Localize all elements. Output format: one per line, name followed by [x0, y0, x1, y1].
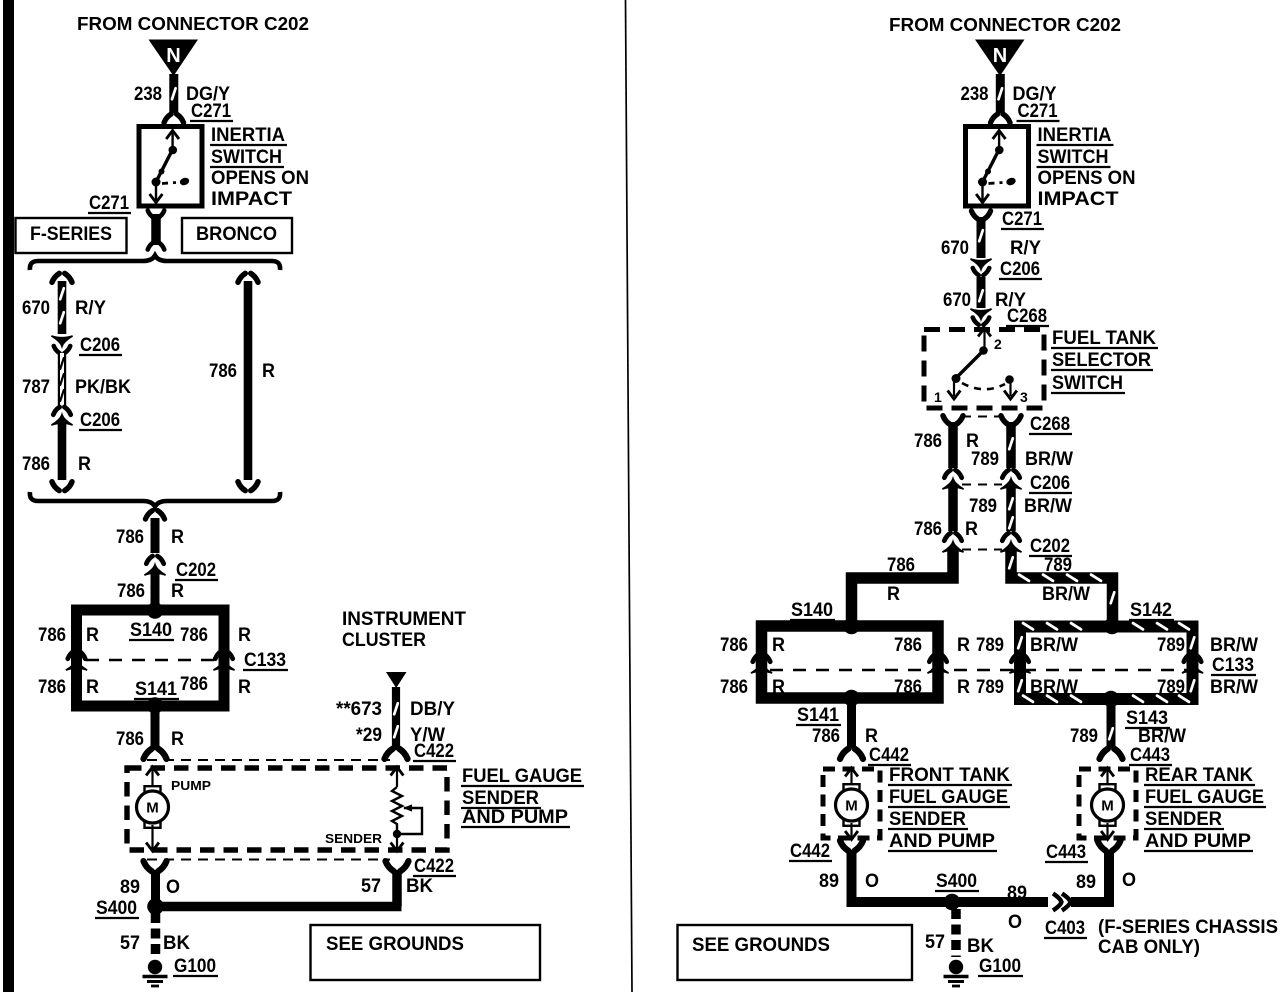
svg-text:IMPACT: IMPACT [1038, 189, 1119, 210]
svg-text:SEE GROUNDS: SEE GROUNDS [692, 935, 830, 956]
svg-text:670: 670 [22, 298, 50, 319]
svg-text:789: 789 [1044, 555, 1072, 576]
svg-text:670: 670 [943, 290, 971, 311]
svg-text:786: 786 [38, 625, 66, 646]
svg-text:BR/W: BR/W [1024, 496, 1072, 517]
svg-text:238: 238 [134, 84, 162, 105]
svg-text:S140: S140 [130, 620, 172, 641]
svg-text:786: 786 [116, 729, 144, 750]
svg-text:57: 57 [925, 932, 945, 953]
svg-text:SENDER: SENDER [1145, 809, 1222, 830]
svg-text:SWITCH: SWITCH [1052, 373, 1123, 394]
svg-text:BR/W: BR/W [1210, 635, 1258, 656]
svg-text:C206: C206 [1030, 473, 1070, 494]
svg-text:**673: **673 [336, 699, 382, 720]
svg-text:S400: S400 [96, 898, 137, 919]
svg-text:INERTIA: INERTIA [211, 125, 285, 146]
svg-text:57: 57 [361, 876, 381, 897]
svg-text:C422: C422 [414, 856, 454, 877]
svg-text:786: 786 [894, 635, 922, 656]
svg-text:SELECTOR: SELECTOR [1052, 350, 1151, 371]
svg-text:786: 786 [180, 674, 208, 695]
svg-text:R: R [772, 677, 785, 698]
svg-text:BK: BK [163, 933, 190, 954]
svg-text:786: 786 [887, 555, 915, 576]
svg-text:FUEL TANK: FUEL TANK [1052, 328, 1156, 349]
svg-text:C268: C268 [1007, 306, 1047, 327]
svg-text:C271: C271 [1018, 101, 1058, 122]
svg-text:FUEL GAUGE: FUEL GAUGE [1145, 787, 1264, 808]
svg-text:PK/BK: PK/BK [75, 377, 131, 398]
svg-text:R: R [262, 361, 275, 382]
svg-text:*29: *29 [356, 725, 382, 746]
svg-text:CLUSTER: CLUSTER [342, 630, 426, 651]
svg-text:O: O [865, 871, 879, 892]
svg-text:3: 3 [1020, 389, 1028, 405]
svg-text:C443: C443 [1046, 842, 1086, 863]
svg-text:R: R [86, 677, 99, 698]
svg-text:BR/W: BR/W [1210, 677, 1258, 698]
svg-text:SWITCH: SWITCH [1038, 147, 1109, 168]
svg-text:786: 786 [914, 431, 942, 452]
svg-text:89: 89 [1007, 883, 1027, 904]
svg-text:R: R [865, 726, 878, 747]
svg-text:CAB ONLY): CAB ONLY) [1098, 937, 1200, 958]
svg-text:SEE GROUNDS: SEE GROUNDS [326, 934, 464, 955]
svg-text:89: 89 [819, 871, 839, 892]
svg-text:DB/Y: DB/Y [410, 699, 455, 720]
svg-text:C133: C133 [1212, 655, 1254, 676]
svg-text:C271: C271 [1002, 209, 1042, 230]
svg-text:2: 2 [994, 336, 1002, 352]
svg-text:AND PUMP: AND PUMP [462, 807, 568, 828]
svg-text:R: R [238, 625, 251, 646]
svg-text:REAR TANK: REAR TANK [1145, 765, 1253, 786]
svg-text:FRONT TANK: FRONT TANK [889, 765, 1010, 786]
svg-text:N: N [993, 45, 1007, 67]
svg-text:787: 787 [22, 377, 50, 398]
svg-text:786: 786 [38, 677, 66, 698]
svg-text:F-SERIES: F-SERIES [30, 224, 112, 245]
svg-text:R/Y: R/Y [75, 298, 106, 319]
svg-text:786: 786 [180, 625, 208, 646]
svg-text:R: R [957, 635, 970, 656]
svg-text:INSTRUMENT: INSTRUMENT [342, 609, 466, 630]
svg-text:789: 789 [976, 635, 1004, 656]
svg-text:R: R [965, 519, 978, 540]
svg-text:89: 89 [120, 877, 140, 898]
svg-text:AND PUMP: AND PUMP [1145, 831, 1251, 852]
svg-text:S400: S400 [936, 871, 977, 892]
svg-text:786: 786 [117, 581, 145, 602]
svg-text:R/Y: R/Y [1010, 238, 1041, 259]
svg-text:PUMP: PUMP [171, 778, 211, 793]
svg-text:C271: C271 [191, 101, 231, 122]
svg-text:786: 786 [720, 677, 748, 698]
svg-text:R: R [171, 581, 184, 602]
svg-text:C422: C422 [414, 741, 454, 762]
svg-text:IMPACT: IMPACT [211, 189, 292, 210]
svg-text:SENDER: SENDER [325, 831, 383, 846]
svg-text:789: 789 [971, 449, 999, 470]
svg-text:786: 786 [116, 527, 144, 548]
svg-text:670: 670 [941, 238, 969, 259]
svg-text:G100: G100 [174, 956, 216, 977]
svg-text:FROM CONNECTOR C202: FROM CONNECTOR C202 [77, 14, 309, 34]
svg-text:S142: S142 [1130, 600, 1172, 621]
svg-text:BK: BK [967, 936, 994, 957]
svg-text:C206: C206 [80, 410, 120, 431]
svg-text:789: 789 [976, 677, 1004, 698]
svg-text:BRONCO: BRONCO [196, 224, 277, 245]
svg-text:N: N [166, 45, 180, 67]
svg-text:R: R [887, 584, 900, 605]
svg-text:SENDER: SENDER [462, 788, 539, 809]
svg-text:R: R [238, 677, 251, 698]
svg-text:BR/W: BR/W [1042, 584, 1090, 605]
svg-text:C206: C206 [1000, 259, 1040, 280]
svg-text:O: O [166, 877, 180, 898]
svg-text:OPENS ON: OPENS ON [211, 168, 309, 189]
svg-text:789: 789 [1157, 677, 1185, 698]
svg-text:O: O [1008, 912, 1022, 933]
svg-text:R: R [772, 635, 785, 656]
svg-text:SENDER: SENDER [889, 809, 966, 830]
svg-text:786: 786 [894, 677, 922, 698]
svg-text:C133: C133 [244, 650, 286, 671]
svg-text:AND PUMP: AND PUMP [889, 831, 995, 852]
svg-text:FUEL GAUGE: FUEL GAUGE [462, 766, 582, 787]
svg-text:S140: S140 [791, 600, 833, 621]
svg-text:C268: C268 [1030, 414, 1070, 435]
svg-text:786: 786 [209, 361, 237, 382]
svg-text:89: 89 [1076, 872, 1096, 893]
svg-text:BR/W: BR/W [1030, 635, 1078, 656]
svg-text:C202: C202 [1030, 536, 1070, 557]
svg-text:FUEL GAUGE: FUEL GAUGE [889, 787, 1008, 808]
svg-text:INERTIA: INERTIA [1038, 125, 1112, 146]
svg-text:(F-SERIES CHASSIS: (F-SERIES CHASSIS [1098, 917, 1278, 938]
svg-text:R: R [78, 454, 91, 475]
svg-text:C202: C202 [176, 560, 216, 581]
svg-text:786: 786 [720, 635, 748, 656]
svg-text:R: R [171, 527, 184, 548]
svg-text:786: 786 [812, 726, 840, 747]
svg-text:S141: S141 [797, 705, 839, 726]
svg-text:G100: G100 [979, 956, 1021, 977]
svg-text:SWITCH: SWITCH [211, 147, 282, 168]
svg-text:786: 786 [22, 454, 50, 475]
svg-text:BR/W: BR/W [1030, 677, 1078, 698]
svg-text:C271: C271 [89, 193, 129, 214]
svg-text:FROM CONNECTOR C202: FROM CONNECTOR C202 [889, 15, 1121, 35]
svg-text:789: 789 [969, 496, 997, 517]
svg-text:C442: C442 [790, 841, 830, 862]
svg-text:C443: C443 [1130, 745, 1170, 766]
svg-text:BR/W: BR/W [1138, 726, 1186, 747]
svg-text:R: R [171, 729, 184, 750]
svg-text:S141: S141 [135, 679, 177, 700]
svg-text:R: R [86, 625, 99, 646]
svg-text:789: 789 [1157, 635, 1185, 656]
svg-text:789: 789 [1070, 726, 1098, 747]
svg-text:O: O [1122, 870, 1136, 891]
svg-text:OPENS ON: OPENS ON [1038, 168, 1136, 189]
svg-text:786: 786 [914, 519, 942, 540]
svg-text:1: 1 [934, 389, 942, 405]
svg-text:238: 238 [961, 84, 989, 105]
svg-text:BR/W: BR/W [1025, 449, 1073, 470]
svg-text:C403: C403 [1045, 918, 1085, 939]
svg-text:R: R [957, 677, 970, 698]
svg-text:BK: BK [406, 876, 433, 897]
svg-text:C206: C206 [80, 335, 120, 356]
svg-text:57: 57 [120, 933, 140, 954]
svg-text:C442: C442 [869, 745, 909, 766]
